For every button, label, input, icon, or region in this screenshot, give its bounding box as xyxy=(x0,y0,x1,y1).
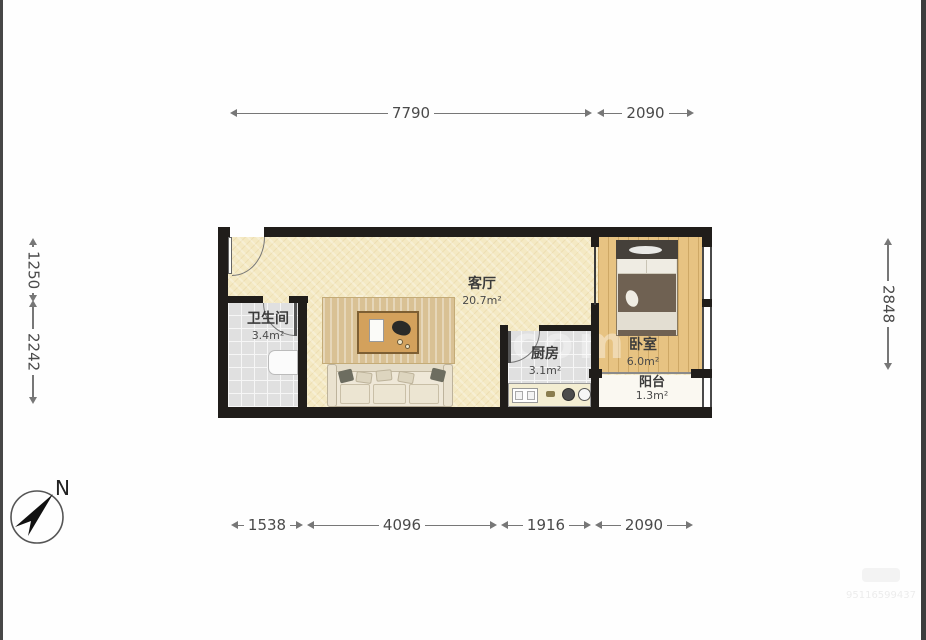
corner-watermark: 95116599437 xyxy=(840,566,922,612)
balcony-name: 阳台 xyxy=(620,376,684,390)
arrow-right-icon xyxy=(585,109,592,117)
compass: N xyxy=(8,486,80,548)
arrow-left-icon xyxy=(595,521,602,529)
compass-north-label: N xyxy=(55,476,70,500)
bathtub xyxy=(268,350,298,375)
dim-bottom-4096: 4096 xyxy=(307,518,497,532)
sofa-pillow-2 xyxy=(375,369,392,382)
bed-foot-strip xyxy=(618,330,676,336)
bathroom-name: 卫生间 xyxy=(234,311,302,329)
outer-wall-top xyxy=(264,227,712,237)
sofa-cushion-3 xyxy=(409,384,439,404)
corner-watermark-code: 95116599437 xyxy=(840,590,922,601)
living-room-label: 客厅 20.7m² xyxy=(446,276,518,307)
arrow-up-icon xyxy=(29,238,37,245)
dim-left-1250: 1250 xyxy=(26,238,40,298)
arrow-left-icon xyxy=(231,521,238,529)
left-edge-band xyxy=(0,0,3,640)
kitchen-sink-basin-right xyxy=(527,391,535,400)
right-window-block-low xyxy=(702,369,712,378)
bathroom-wall-top-right xyxy=(289,296,308,303)
right-window-block-top xyxy=(702,237,712,247)
kitchen-sink-basin-left xyxy=(515,391,523,400)
dim-right-2848: 2848 xyxy=(881,238,895,370)
arrow-left-icon xyxy=(307,521,314,529)
arrow-right-icon xyxy=(686,521,693,529)
bathroom-wall-top-left xyxy=(218,296,263,303)
right-window-block-mid xyxy=(702,299,712,307)
coffee-table-paper xyxy=(369,319,384,342)
arrow-right-icon xyxy=(296,521,303,529)
outer-wall-left xyxy=(218,227,228,418)
bedroom-label: 卧室 6.0m² xyxy=(611,337,675,368)
living-room-area: 20.7m² xyxy=(446,294,518,308)
right-window-wall xyxy=(702,237,712,407)
kitchen-area: 3.1m² xyxy=(513,364,577,378)
sofa-cushion-1 xyxy=(340,384,370,404)
kitchen-faucet xyxy=(546,391,555,397)
living-room-name: 客厅 xyxy=(446,276,518,294)
arrow-right-icon xyxy=(490,521,497,529)
arrow-down-icon xyxy=(884,363,892,370)
arrow-down-icon xyxy=(29,397,37,404)
arrow-left-icon xyxy=(230,109,237,117)
bed-foot-sheet xyxy=(618,312,676,330)
bathroom-area: 3.4m² xyxy=(234,329,302,343)
kitchen-wall-left xyxy=(500,325,508,407)
dim-bottom-2090: 2090 xyxy=(595,518,693,532)
sofa-pillow-1 xyxy=(355,371,372,384)
floor-plan-image: lian com xyxy=(0,0,926,640)
sofa-armrest-left xyxy=(327,364,337,407)
arrow-left-icon xyxy=(597,109,604,117)
north-arrow-icon xyxy=(15,494,53,536)
outer-wall-bottom xyxy=(218,407,712,418)
coffee-table-cup xyxy=(397,339,403,345)
arrow-right-icon xyxy=(584,521,591,529)
dim-bottom-1916: 1916 xyxy=(501,518,591,532)
bedroom-wall-left-top-block xyxy=(591,237,599,247)
bathroom-label: 卫生间 3.4m² xyxy=(234,311,302,342)
corner-watermark-logo xyxy=(862,568,900,582)
right-edge-band xyxy=(921,0,926,640)
kitchen-label: 厨房 3.1m² xyxy=(513,346,577,377)
balcony-divider-block-left xyxy=(589,369,602,378)
bed-headboard-plate xyxy=(629,246,662,254)
balcony-divider-line xyxy=(599,372,699,374)
arrow-up-icon xyxy=(29,300,37,307)
bedroom-wall-left xyxy=(591,303,599,407)
dim-top-7790: 7790 xyxy=(230,106,592,120)
bed-pillows xyxy=(618,259,676,274)
balcony-area: 1.3m² xyxy=(620,390,684,402)
kitchen-stove-burner-right xyxy=(578,388,591,401)
arrow-left-icon xyxy=(501,521,508,529)
dim-bottom-1538: 1538 xyxy=(231,518,303,532)
kitchen-stove-burner-left xyxy=(562,388,575,401)
kitchen-wall-top xyxy=(539,325,598,331)
bedroom-partition-line xyxy=(594,247,596,305)
kitchen-name: 厨房 xyxy=(513,346,577,364)
bed-pillow-split-line xyxy=(646,260,647,273)
coffee-table-cup-2 xyxy=(405,344,410,349)
sofa-cushion-2 xyxy=(373,384,406,404)
arrow-up-icon xyxy=(884,238,892,245)
kitchen-door-leaf xyxy=(508,331,511,363)
dim-top-2090: 2090 xyxy=(597,106,694,120)
bedroom-name: 卧室 xyxy=(611,337,675,355)
balcony-label: 阳台 1.3m² xyxy=(620,376,684,402)
dim-left-2242: 2242 xyxy=(26,300,40,404)
arrow-right-icon xyxy=(687,109,694,117)
bedroom-area: 6.0m² xyxy=(611,355,675,369)
